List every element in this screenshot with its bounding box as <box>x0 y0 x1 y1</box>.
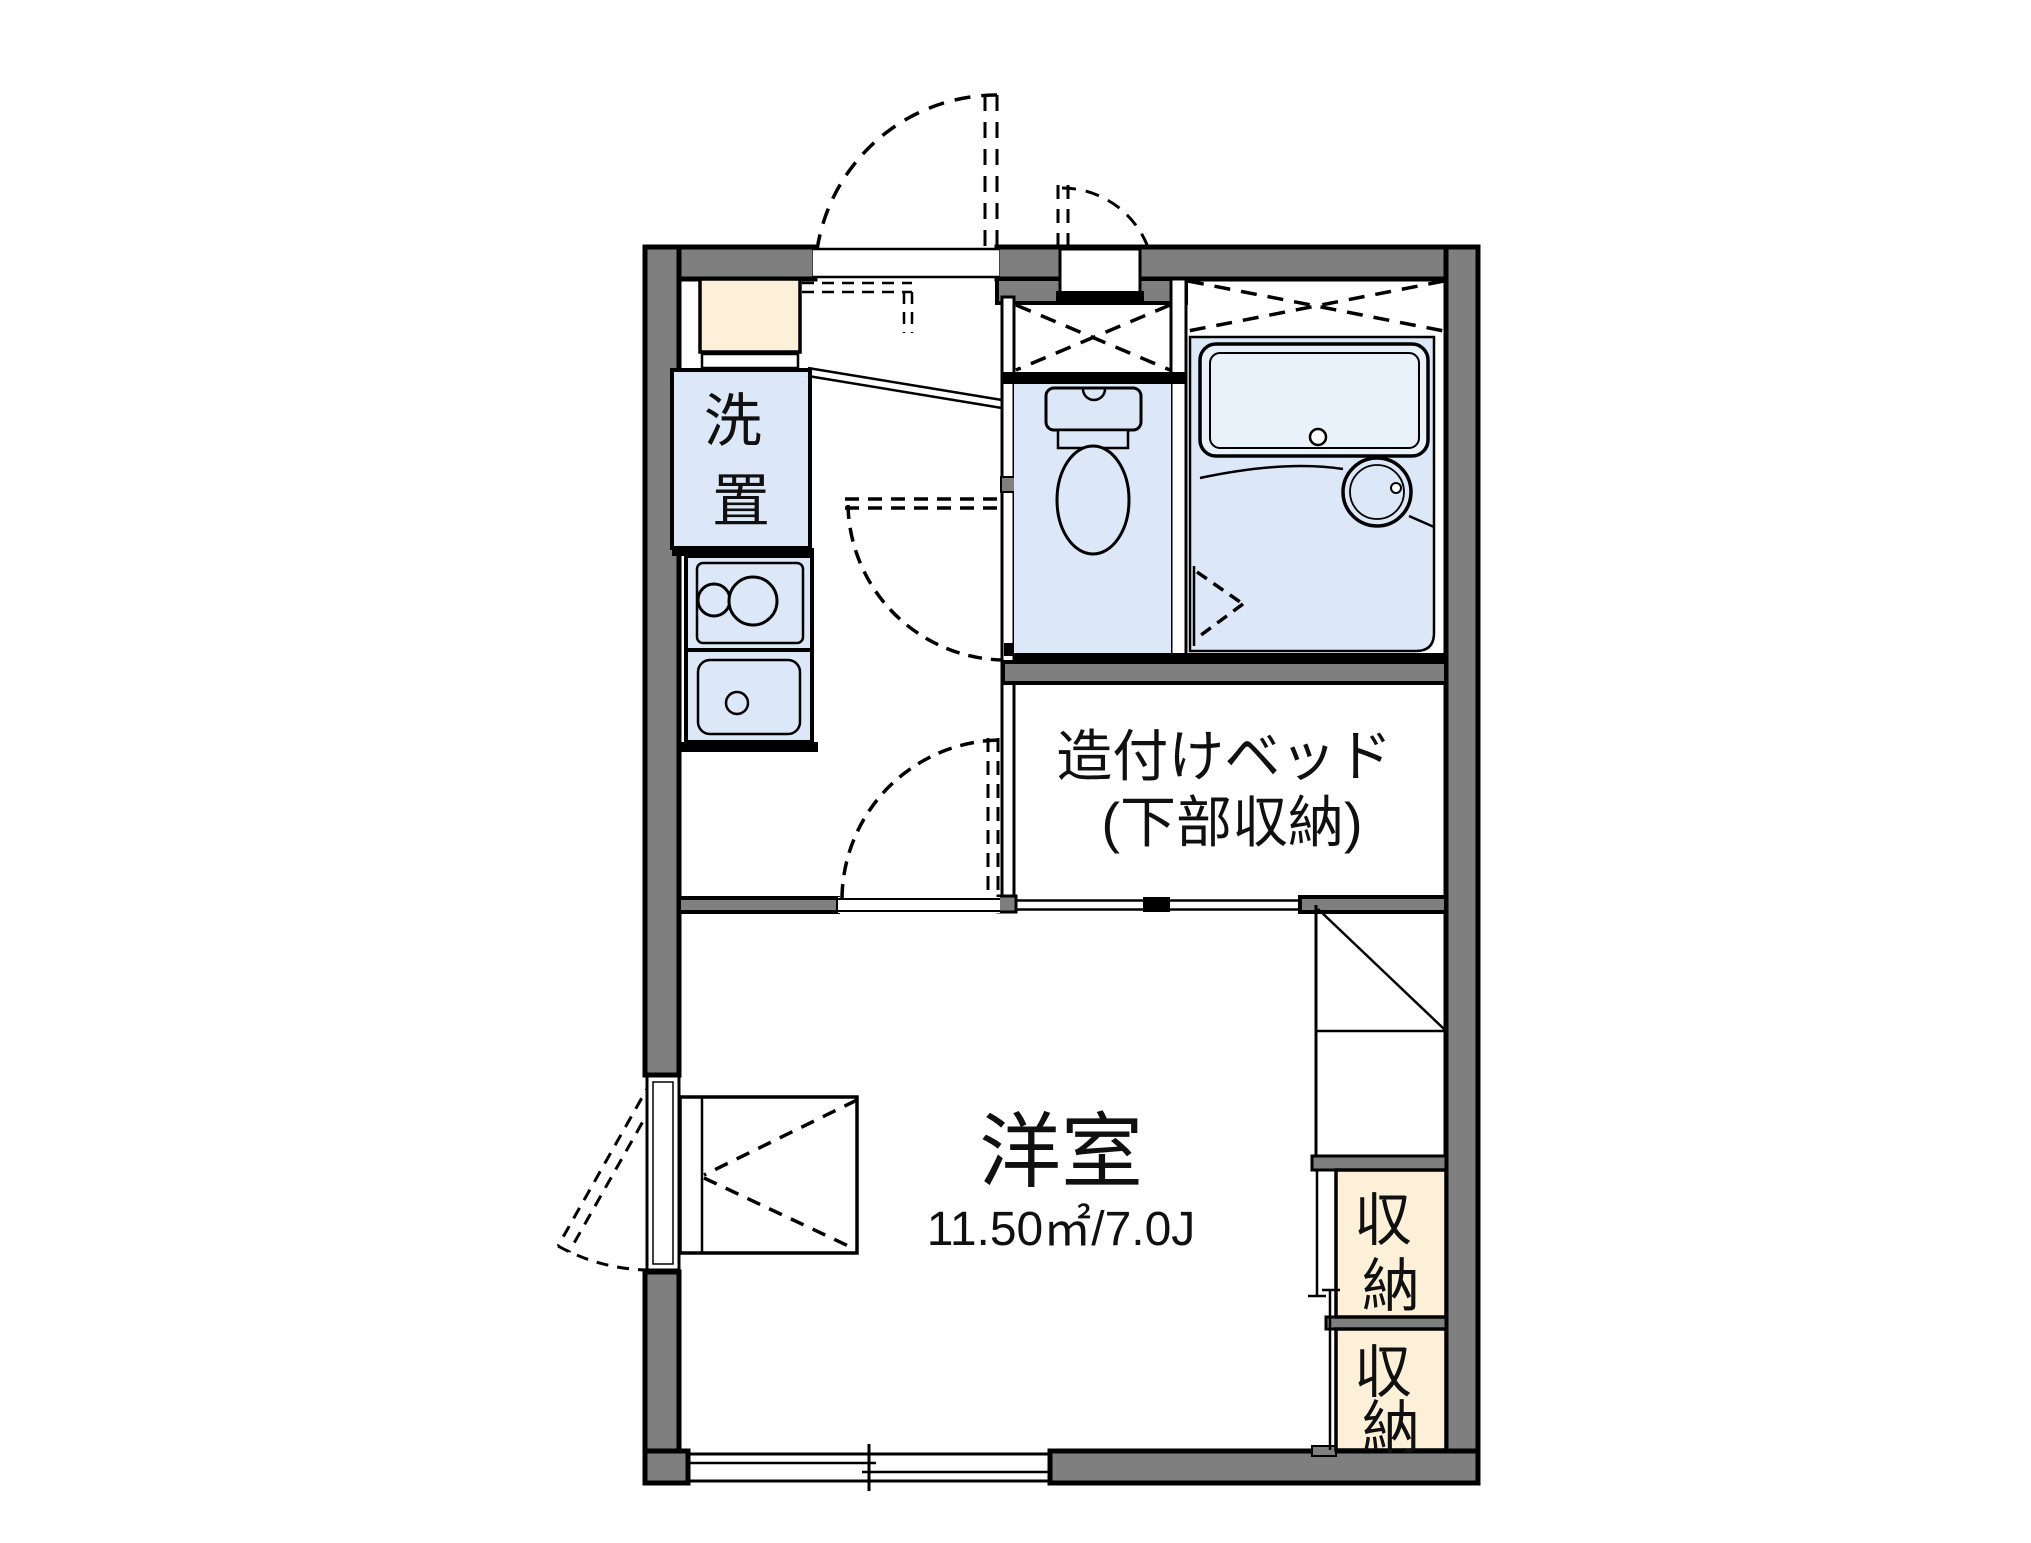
wall-closet-top <box>1300 897 1446 912</box>
wall-toilet-top <box>1002 372 1186 384</box>
genkan <box>802 283 1002 408</box>
tub-drain <box>1310 429 1326 445</box>
kitchen: 洗 置 <box>672 279 818 752</box>
storage-2: 収 納 <box>1336 1329 1446 1461</box>
wall-right <box>1446 247 1478 1483</box>
wall-bed-top <box>1003 662 1446 683</box>
stove-burner-left <box>698 584 730 616</box>
storage-1: 収 納 <box>1336 1170 1446 1319</box>
fridge-space <box>700 279 800 352</box>
bed-label: 造付けベッド (下部収納) <box>1056 725 1408 854</box>
genkan-step-line <box>808 368 1002 400</box>
bath-room <box>1188 281 1444 651</box>
hall-door-upper <box>845 499 1004 660</box>
built-in-bed-room: 造付けベッド (下部収納) <box>1056 725 1408 854</box>
entrance-opening <box>813 249 999 277</box>
bottom-window <box>688 1444 1050 1491</box>
wall-hall-bottom <box>679 898 838 912</box>
room-name-label: 洋室 <box>979 1107 1143 1198</box>
toilet-room <box>1014 305 1171 653</box>
wall-toilet-bath <box>1171 279 1186 660</box>
wall-bottom-left <box>645 1451 688 1483</box>
left-window-panel <box>647 1076 679 1270</box>
wall-hall-right <box>1002 297 1014 910</box>
bed-front-pillar <box>1143 897 1170 912</box>
window-side-box <box>680 1097 857 1253</box>
kitchen-sink <box>686 650 812 742</box>
wall-closet-bottom <box>1312 1156 1446 1170</box>
western-room: 洋室 11.50㎡/7.0J <box>647 1076 1195 1270</box>
meter-box-notch <box>1056 249 1144 303</box>
floor-plan-canvas: 洗 置 <box>0 0 2031 1543</box>
kitchen-counter-edge <box>702 354 798 368</box>
closet <box>1316 905 1446 1156</box>
sink-drain <box>726 692 748 714</box>
storage-2-label: 収 納 <box>1354 1340 1428 1461</box>
room-area-label: 11.50㎡/7.0J <box>927 1203 1196 1256</box>
bath-sink <box>1343 458 1411 526</box>
room-entrance-door <box>842 738 1000 898</box>
toilet-bowl <box>1057 446 1129 554</box>
floor-plan: 洗 置 <box>0 0 2031 1543</box>
storage-1-label: 収 納 <box>1354 1188 1428 1319</box>
stove-burner-right <box>729 577 777 625</box>
toilet-tank <box>1046 388 1141 430</box>
